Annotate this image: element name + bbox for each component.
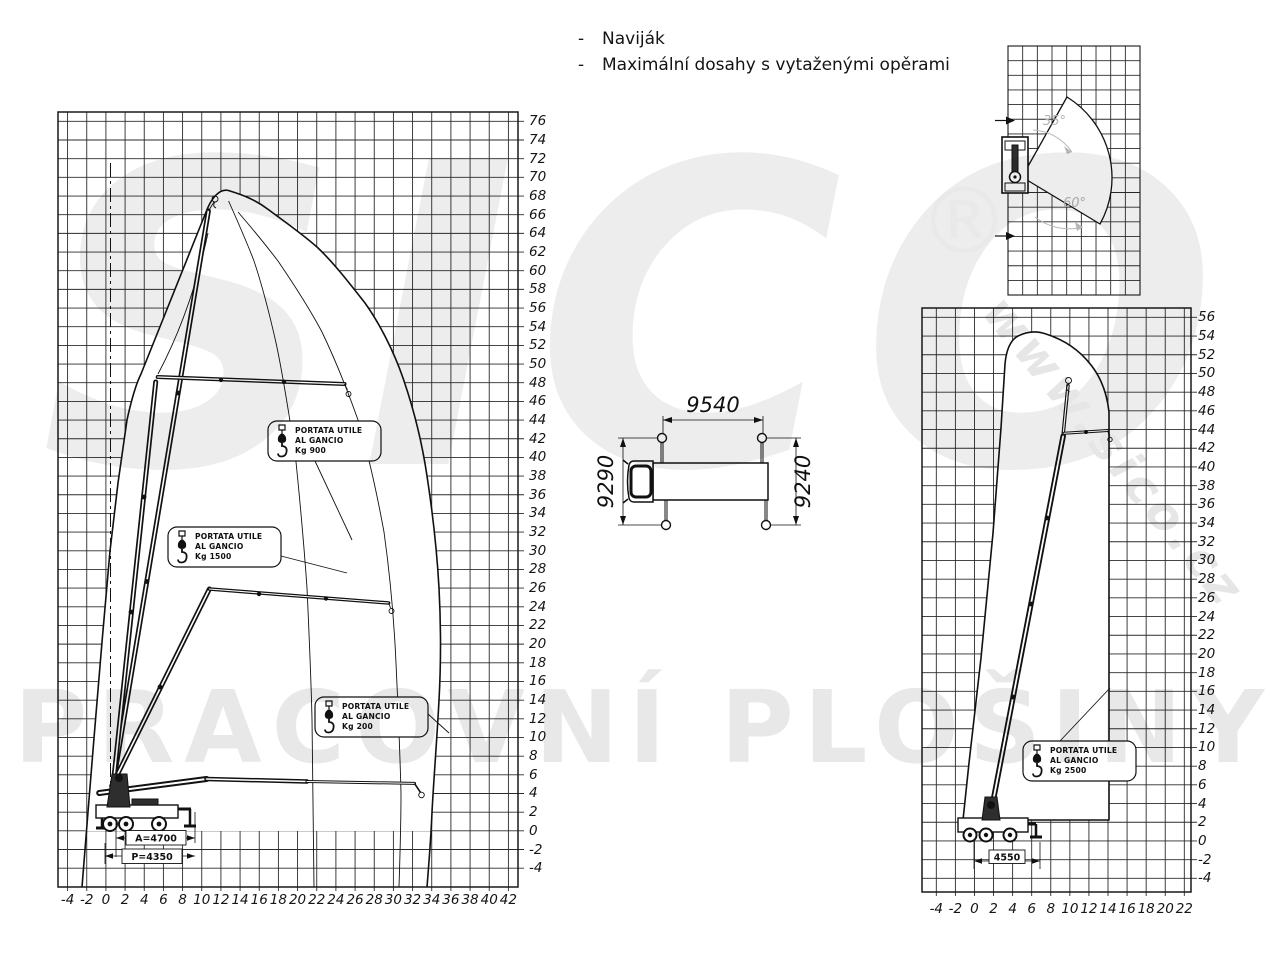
axis-tick-label: 16 [1118,902,1135,916]
axis-tick-label: 32 [404,893,421,907]
axis-tick-label: 2 [1198,815,1207,829]
dash: - [578,26,602,52]
axis-tick-label: 42 [529,432,546,446]
axis-tick-label: 8 [529,749,538,763]
note-text-navijak: Naviják [602,26,665,52]
axis-tick-label: 66 [529,208,546,222]
axis-tick-label: 48 [529,376,546,390]
axis-tick-label: 18 [529,656,546,670]
axis-tick-label: 20 [289,893,306,907]
svg-text:PORTATA UTILE: PORTATA UTILE [1050,746,1117,755]
axis-tick-label: 52 [1198,348,1215,362]
axis-tick-label: -4 [930,902,943,916]
axis-tick-label: 10 [193,893,210,907]
left-chart-x-axis: -4-2024681012141618202224262830323436384… [58,893,518,911]
axis-tick-label: -2 [1198,853,1211,867]
axis-tick-label: 20 [1157,902,1174,916]
axis-tick-label: 28 [1198,572,1215,586]
axis-tick-label: 20 [529,637,546,651]
axis-tick-label: 28 [366,893,383,907]
axis-tick-label: 32 [1198,535,1215,549]
axis-tick-label: 56 [1198,310,1215,324]
axis-tick-label: 42 [500,893,517,907]
axis-tick-label: -4 [1198,871,1211,885]
axis-tick-label: 32 [529,525,546,539]
svg-text:AL GANCIO: AL GANCIO [195,542,244,551]
axis-tick-label: 54 [529,320,546,334]
capacity-box-kg200: PORTATA UTILE AL GANCIO Kg 200 [315,697,449,737]
right-chart-y-axis: 5654525048464442403836343230282624222018… [1198,308,1228,892]
axis-tick-label: 30 [385,893,402,907]
axis-tick-label: 4 [140,893,149,907]
axis-tick-label: 0 [102,893,111,907]
axis-tick-label: 6 [1027,902,1036,916]
axis-tick-label: 10 [529,730,546,744]
axis-tick-label: 58 [529,282,546,296]
axis-tick-label: -2 [80,893,93,907]
axis-tick-label: 10 [1061,902,1078,916]
axis-tick-label: 2 [989,902,998,916]
capacity-box-kg900: PORTATA UTILE AL GANCIO Kg 900 [268,421,381,540]
axis-tick-label: 8 [1198,759,1207,773]
page: { "header": { "bullets": [ {"dash": "-",… [0,0,1280,960]
axis-tick-label: 24 [327,893,344,907]
axis-tick-label: 26 [346,893,363,907]
axis-tick-label: 2 [121,893,130,907]
axis-tick-label: 44 [529,413,546,427]
axis-tick-label: 22 [308,893,325,907]
axis-tick-label: -4 [61,893,74,907]
axis-tick-label: 10 [1198,740,1215,754]
axis-tick-label: 74 [529,133,546,147]
axis-tick-label: 14 [1099,902,1116,916]
axis-tick-label: 12 [1198,722,1215,736]
note-line: - Naviják [578,26,950,52]
axis-tick-label: 44 [1198,423,1215,437]
svg-text:Kg 200: Kg 200 [342,722,373,731]
axis-tick-label: 60 [529,264,546,278]
note-line: - Maximální dosahy s vytaženými opěrami [578,52,950,78]
capacity-labels-overlay: PORTATA UTILE AL GANCIO Kg 900 PORTATA U… [0,0,1280,960]
axis-tick-label: -2 [529,843,542,857]
axis-tick-label: 18 [1198,666,1215,680]
axis-tick-label: 68 [529,189,546,203]
axis-tick-label: 18 [270,893,287,907]
axis-tick-label: 70 [529,170,546,184]
axis-tick-label: 6 [529,768,538,782]
axis-tick-label: 4 [529,786,538,800]
axis-tick-label: 0 [529,824,538,838]
axis-tick-label: 8 [1046,902,1055,916]
axis-tick-label: 62 [529,245,546,259]
axis-tick-label: 30 [1198,553,1215,567]
axis-tick-label: 38 [529,469,546,483]
svg-text:PORTATA UTILE: PORTATA UTILE [295,426,362,435]
axis-tick-label: 4 [1008,902,1017,916]
capacity-box-kg2500: PORTATA UTILE AL GANCIO Kg 2500 [1023,688,1136,781]
axis-tick-label: 40 [529,450,546,464]
axis-tick-label: 14 [1198,703,1215,717]
axis-tick-label: 76 [529,114,546,128]
svg-text:AL GANCIO: AL GANCIO [1050,756,1099,765]
axis-tick-label: 38 [1198,479,1215,493]
axis-tick-label: 22 [1176,902,1193,916]
axis-tick-label: 72 [529,152,546,166]
axis-tick-label: 16 [1198,684,1215,698]
axis-tick-label: 34 [529,506,546,520]
axis-tick-label: 20 [1198,647,1215,661]
axis-tick-label: 50 [529,357,546,371]
axis-tick-label: 16 [529,674,546,688]
axis-tick-label: 48 [1198,385,1215,399]
note-text-max-reach: Maximální dosahy s vytaženými opěrami [602,52,950,78]
axis-tick-label: 22 [529,618,546,632]
axis-tick-label: 16 [251,893,268,907]
axis-tick-label: 6 [159,893,168,907]
axis-tick-label: 4 [1198,797,1207,811]
axis-tick-label: 38 [461,893,478,907]
axis-tick-label: 40 [1198,460,1215,474]
dash: - [578,52,602,78]
axis-tick-label: 40 [481,893,498,907]
axis-tick-label: 12 [1080,902,1097,916]
axis-tick-label: 50 [1198,366,1215,380]
axis-tick-label: 0 [1198,834,1207,848]
axis-tick-label: 36 [442,893,459,907]
header-notes: - Naviják - Maximální dosahy s vytaženým… [578,26,950,78]
svg-text:Kg 900: Kg 900 [295,446,326,455]
svg-text:AL GANCIO: AL GANCIO [342,712,391,721]
axis-tick-label: 8 [178,893,187,907]
axis-tick-label: 14 [529,693,546,707]
right-chart-x-axis: -4-20246810121416182022 [922,902,1191,920]
axis-tick-label: 6 [1198,778,1207,792]
svg-text:Kg 2500: Kg 2500 [1050,766,1087,775]
axis-tick-label: 22 [1198,628,1215,642]
svg-text:PORTATA UTILE: PORTATA UTILE [195,532,262,541]
svg-text:Kg 1500: Kg 1500 [195,552,232,561]
axis-tick-label: 26 [1198,591,1215,605]
axis-tick-label: 56 [529,301,546,315]
axis-tick-label: 14 [231,893,248,907]
axis-tick-label: 34 [1198,516,1215,530]
axis-tick-label: 12 [212,893,229,907]
svg-text:AL GANCIO: AL GANCIO [295,436,344,445]
axis-tick-label: 28 [529,562,546,576]
axis-tick-label: 34 [423,893,440,907]
capacity-box-kg1500: PORTATA UTILE AL GANCIO Kg 1500 [168,527,347,573]
axis-tick-label: 36 [1198,497,1215,511]
axis-tick-label: 24 [529,600,546,614]
axis-tick-label: 52 [529,338,546,352]
axis-tick-label: 18 [1138,902,1155,916]
axis-tick-label: 64 [529,226,546,240]
svg-text:PORTATA UTILE: PORTATA UTILE [342,702,409,711]
axis-tick-label: 54 [1198,329,1215,343]
axis-tick-label: 24 [1198,610,1215,624]
axis-tick-label: -4 [529,861,542,875]
axis-tick-label: 26 [529,581,546,595]
axis-tick-label: 42 [1198,441,1215,455]
left-chart-y-axis: 7674727068666462605856545250484644424038… [529,112,559,887]
axis-tick-label: 36 [529,488,546,502]
axis-tick-label: 2 [529,805,538,819]
axis-tick-label: 12 [529,712,546,726]
axis-tick-label: 46 [529,394,546,408]
axis-tick-label: 30 [529,544,546,558]
axis-tick-label: 46 [1198,404,1215,418]
axis-tick-label: 0 [970,902,979,916]
axis-tick-label: -2 [949,902,962,916]
